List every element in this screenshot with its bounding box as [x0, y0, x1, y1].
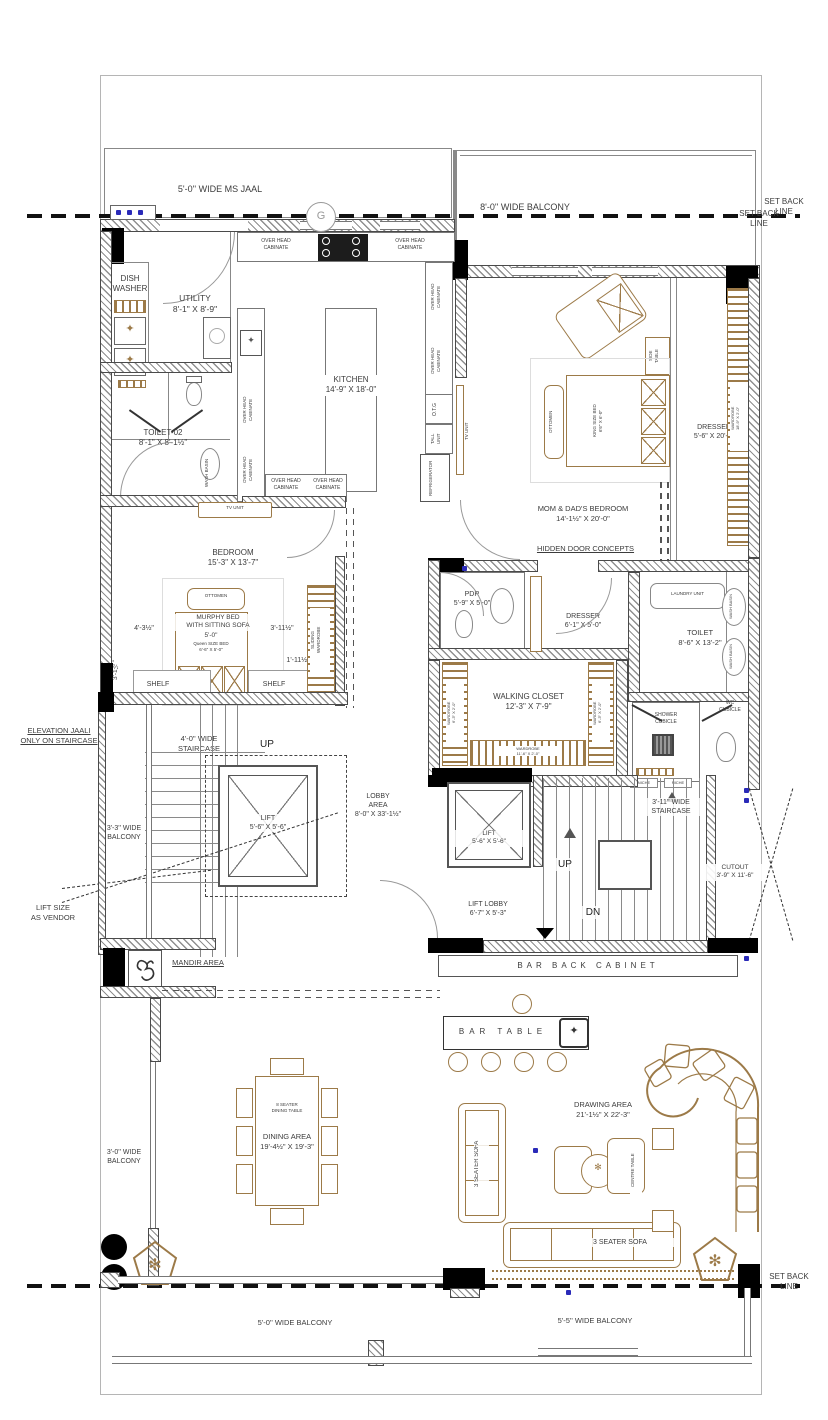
momdad-left-wall — [455, 278, 467, 378]
closet-wardrobe-left-label: WARDROBE 6'-3" X 2'-0" — [446, 682, 464, 744]
bedroom-right-wall — [335, 556, 345, 706]
bar-stool — [512, 994, 532, 1014]
column — [428, 938, 483, 953]
column — [98, 692, 114, 712]
stove-burner — [322, 237, 330, 245]
pdr-left-wall — [428, 560, 440, 660]
wall-right-outer — [748, 278, 760, 558]
overhead-cabinet-label: OVER HEAD CABINATE — [430, 332, 448, 390]
hidden-door-label: HIDDEN DOOR CONCEPTS — [528, 544, 643, 554]
overhead-cabinet-label: OVER HEAD CABINATE — [264, 478, 308, 491]
balcony30-rail — [150, 1062, 156, 1230]
bedroom-label: BEDROOM 15'-3" X 13'-7" — [178, 548, 288, 569]
electrical-point — [533, 1148, 538, 1153]
toilet-label: TOILET 8'-6" X 13'-2" — [660, 628, 740, 648]
shower-label: SHOWER CUBICLE — [635, 712, 697, 725]
lift1-label: LIFT 5'-6" X 5'-6" — [233, 814, 303, 832]
wall-left — [100, 231, 112, 706]
window-top-4 — [592, 267, 658, 276]
washing-machine-door — [209, 328, 225, 344]
corner-side-table — [652, 1128, 674, 1150]
dining-chair-top — [270, 1058, 304, 1075]
dining-chair-right — [321, 1088, 338, 1118]
top-balcony-inner-edge — [460, 155, 752, 156]
drawing-area-label: DRAWING AREA 21'-1½" X 22'-3" — [558, 1100, 648, 1120]
right-balcony-rail — [744, 1288, 751, 1364]
bottom-balcony-rail — [112, 1356, 752, 1364]
closet-right-wall — [616, 660, 628, 778]
overhead-cabinet-label: OVER HEAD CABINATE — [248, 238, 304, 251]
king-pillow — [641, 437, 666, 464]
dim-3-11: 3'-11½" — [258, 624, 306, 633]
corridor-dash — [346, 508, 347, 708]
svg-text:✻: ✻ — [148, 1257, 161, 1274]
hidden-door-panel — [530, 576, 542, 652]
bar-stool — [514, 1052, 534, 1072]
toilet02-basin-label: WASH BASIN — [204, 450, 216, 496]
barback-wall — [483, 940, 708, 953]
refrigerator-label: REFRIGERATOR — [428, 456, 442, 500]
stair-arrow-up — [564, 828, 576, 838]
dim-3-1: 3'-1½" — [112, 650, 123, 690]
om-icon — [134, 958, 156, 984]
stair2-landing — [598, 840, 652, 890]
bedroom-bottom-wall — [100, 692, 348, 705]
momdad-door-dash2 — [667, 482, 669, 560]
balcony30-label: 3'-0'' WIDE BALCONY — [98, 1148, 150, 1166]
stove-burner — [352, 237, 360, 245]
queen-bed-label: Queen SIZE BED 6'-6" X 5'-0" — [178, 641, 244, 653]
wavy-trim — [492, 1274, 734, 1280]
utility-label: UTILITY 8'-1" X 8'-9" — [150, 293, 240, 315]
dim-5-0: 5'-0" — [186, 632, 236, 640]
lift-size-label: LIFT SIZE AS VENDOR — [20, 903, 86, 923]
electrical-point — [462, 566, 467, 571]
laundry-label: LAUNDRY UNIT — [650, 591, 725, 597]
dim-4-3: 4'-3½" — [122, 624, 166, 633]
bar-stool — [448, 1052, 468, 1072]
electrical-point — [116, 210, 121, 215]
cutout-label: CUTOUT 3'-9" X 11'-6" — [706, 864, 764, 881]
dishwasher-top — [112, 262, 148, 263]
dishwasher-label: DISH WASHER — [106, 274, 154, 295]
floor-plan: G 5'-0'' WIDE MS JAAL 8'-0'' WIDE BALCON… — [0, 0, 828, 1420]
up-label-2: UP — [550, 858, 580, 871]
bedroom-ottoman — [187, 588, 245, 610]
ms-jaal-label: 5'-0'' WIDE MS JAAL — [150, 184, 290, 196]
dresser-corridor-line2 — [676, 278, 677, 560]
dn-label: DN — [578, 906, 608, 919]
column — [432, 768, 532, 782]
staircase4-label: 4'-0'' WIDE STAIRCASE — [160, 734, 238, 754]
electrical-point — [744, 788, 749, 793]
stair-arrow-dn — [536, 928, 554, 939]
up-label: UP — [252, 738, 282, 751]
dining-table-label: 8 SEATER DINING TABLE — [258, 1102, 316, 1114]
momdad-tv-panel — [456, 385, 464, 475]
toilet-left-wall — [628, 572, 640, 696]
electrical-point — [744, 798, 749, 803]
bottom-wall-corner — [100, 1272, 120, 1288]
toilet-top-wall — [598, 560, 760, 572]
sofa-h-divider — [551, 1228, 552, 1261]
window-top-2 — [380, 221, 420, 230]
sliding-wardrobe-label: SLIDING WARDROBE — [310, 608, 330, 672]
stair-left-outer-wall — [98, 705, 106, 955]
bar-stool — [481, 1052, 501, 1072]
balcony50-label: 5'-0'' WIDE BALCONY — [235, 1318, 355, 1328]
dining-chair-bottom — [270, 1208, 304, 1225]
column — [443, 1268, 485, 1290]
utility-door-opening — [160, 220, 248, 231]
stove-burner — [352, 249, 360, 257]
balcony55-label: 5'-5'' WIDE BALCONY — [535, 1316, 655, 1326]
stair-jaali-rail — [146, 705, 152, 955]
lift2-car — [455, 790, 523, 860]
wc-cubicle-pot — [716, 732, 736, 762]
wc-pot — [186, 382, 202, 406]
bottom-pier-hatch — [450, 1288, 480, 1298]
momdad-label: MOM & DAD'S BEDROOM 14'-1½" X 20'-0" — [518, 504, 648, 524]
overhead-cabinet-label: OVER HEAD CABINATE — [430, 268, 448, 326]
electrical-point — [138, 210, 143, 215]
toilet-right-wall — [748, 558, 760, 790]
overhead-cabinet-label: OVER HEAD CABINATE — [382, 238, 438, 251]
bottom-rail-left — [118, 1276, 446, 1284]
balcony-pier — [150, 998, 161, 1062]
closet-wardrobe-bottom-label: WARDROBE 11'-6" X 2'-0" — [494, 746, 562, 756]
stair-stringer — [200, 705, 201, 957]
kitchen-sink-star: ✦ — [240, 335, 262, 347]
dining-chair-left — [236, 1088, 253, 1118]
closet-wardrobe-right-label: WARDROBE 6'-3" X 2'-0" — [592, 682, 610, 744]
setback-label-bottom: SET BACK LINE — [760, 1272, 818, 1293]
dining-area-label: DINING AREA 19'-4½" X 19'-3" — [250, 1132, 324, 1152]
king-pillow — [641, 408, 666, 435]
lobby-bottom-dash — [162, 990, 440, 991]
electrical-point — [127, 210, 132, 215]
tv-unit-label: TV UNIT — [464, 405, 475, 457]
staircase311-label: 3'-11'' WIDE STAIRCASE — [636, 798, 706, 816]
tall-unit-label: TALL UNIT — [430, 426, 448, 452]
overhead-cabinet-label: OVER HEAD CABINATE — [242, 382, 260, 438]
dresser-corridor-line — [670, 278, 671, 560]
column — [708, 938, 758, 953]
ottoman-label: OTTOMEN — [187, 593, 245, 599]
sofa-horizontal-label: 3 SEATER SOFA — [565, 1238, 675, 1247]
toilet-grill — [636, 768, 674, 776]
lift-lobby-label: LIFT LOBBY 6'-7" X 5'-3" — [452, 900, 524, 918]
window-top-3 — [512, 267, 578, 276]
ottoman-label: OTTOMEN — [548, 392, 560, 452]
king-pillow — [641, 379, 666, 406]
bar-end-star: ✦ — [559, 1024, 589, 1038]
lobby-bottom-dash2 — [162, 997, 440, 998]
mandir-label: MANDIR AREA — [158, 958, 238, 968]
bar-stool — [547, 1052, 567, 1072]
ms-jaal-slab — [104, 148, 452, 218]
sofa-vertical-label: 3 SEATER SOFA — [474, 1125, 489, 1203]
shower-drain — [652, 734, 674, 756]
bottom-balcony-rail-jog — [538, 1348, 638, 1356]
setback-label-top2: SET BACK LINE — [730, 209, 788, 230]
corner-side-table — [652, 1210, 674, 1232]
king-bed-label: KING SIZE BED 6'6" X 6'-0" — [592, 390, 608, 452]
stove-burner — [322, 249, 330, 257]
closet-left-wall — [428, 660, 440, 778]
column — [103, 948, 125, 990]
dining-chair-left — [236, 1164, 253, 1194]
overhead-cabinet-label: OVER HEAD CABINATE — [306, 478, 350, 491]
momdad-door-dash — [660, 482, 662, 560]
top-balcony-label: 8'-0'' WIDE BALCONY — [460, 202, 590, 214]
stair2-left-wall — [533, 775, 543, 867]
hob-star: ✦ — [114, 322, 146, 336]
wavy-trim — [492, 1266, 734, 1272]
walking-closet-label: WALKING CLOSET 12'-3" X 7'-9" — [466, 692, 591, 713]
bar-table-label: BAR TABLE — [448, 1027, 558, 1037]
pdr-basin — [490, 588, 514, 624]
dining-chair-right — [321, 1164, 338, 1194]
utility-grill — [114, 300, 146, 313]
kitchen-label: KITCHEN 14'-9" X 18'-0" — [305, 375, 397, 396]
toilet02-grill — [118, 380, 146, 388]
gas-meter-label: G — [306, 209, 336, 223]
toilet02-top-wall — [100, 362, 232, 373]
elevation-jaali-label: ELEVATION JAALI ONLY ON STAIRCASE — [14, 726, 104, 746]
otg-label: O.T.G — [432, 396, 446, 422]
murphy-label: MURPHY BED WITH SITTING SOFA — [168, 614, 268, 631]
toilet-basin-label: WASH BASIN — [728, 590, 740, 624]
overhead-cabinet-label: OVER HEAD CABINATE — [242, 442, 260, 498]
bar-back-cabinet-label: BAR BACK CABINET — [448, 961, 728, 971]
corridor-dash2 — [353, 508, 354, 708]
kitchen-island — [325, 308, 377, 492]
tv-unit-label: TV UNIT — [198, 505, 272, 511]
electrical-point — [566, 1290, 571, 1295]
lobby-area-label: LOBBY AREA 8'-0" X 33'-1½" — [340, 792, 416, 819]
shelf-label: SHELF — [252, 680, 296, 689]
lift2-label: LIFT 5'-6" X 5'-6" — [454, 830, 524, 847]
shelf-label: SHELF — [136, 680, 180, 689]
deco-circle — [101, 1234, 127, 1260]
wc-tank — [186, 376, 202, 383]
electrical-point — [744, 956, 749, 961]
